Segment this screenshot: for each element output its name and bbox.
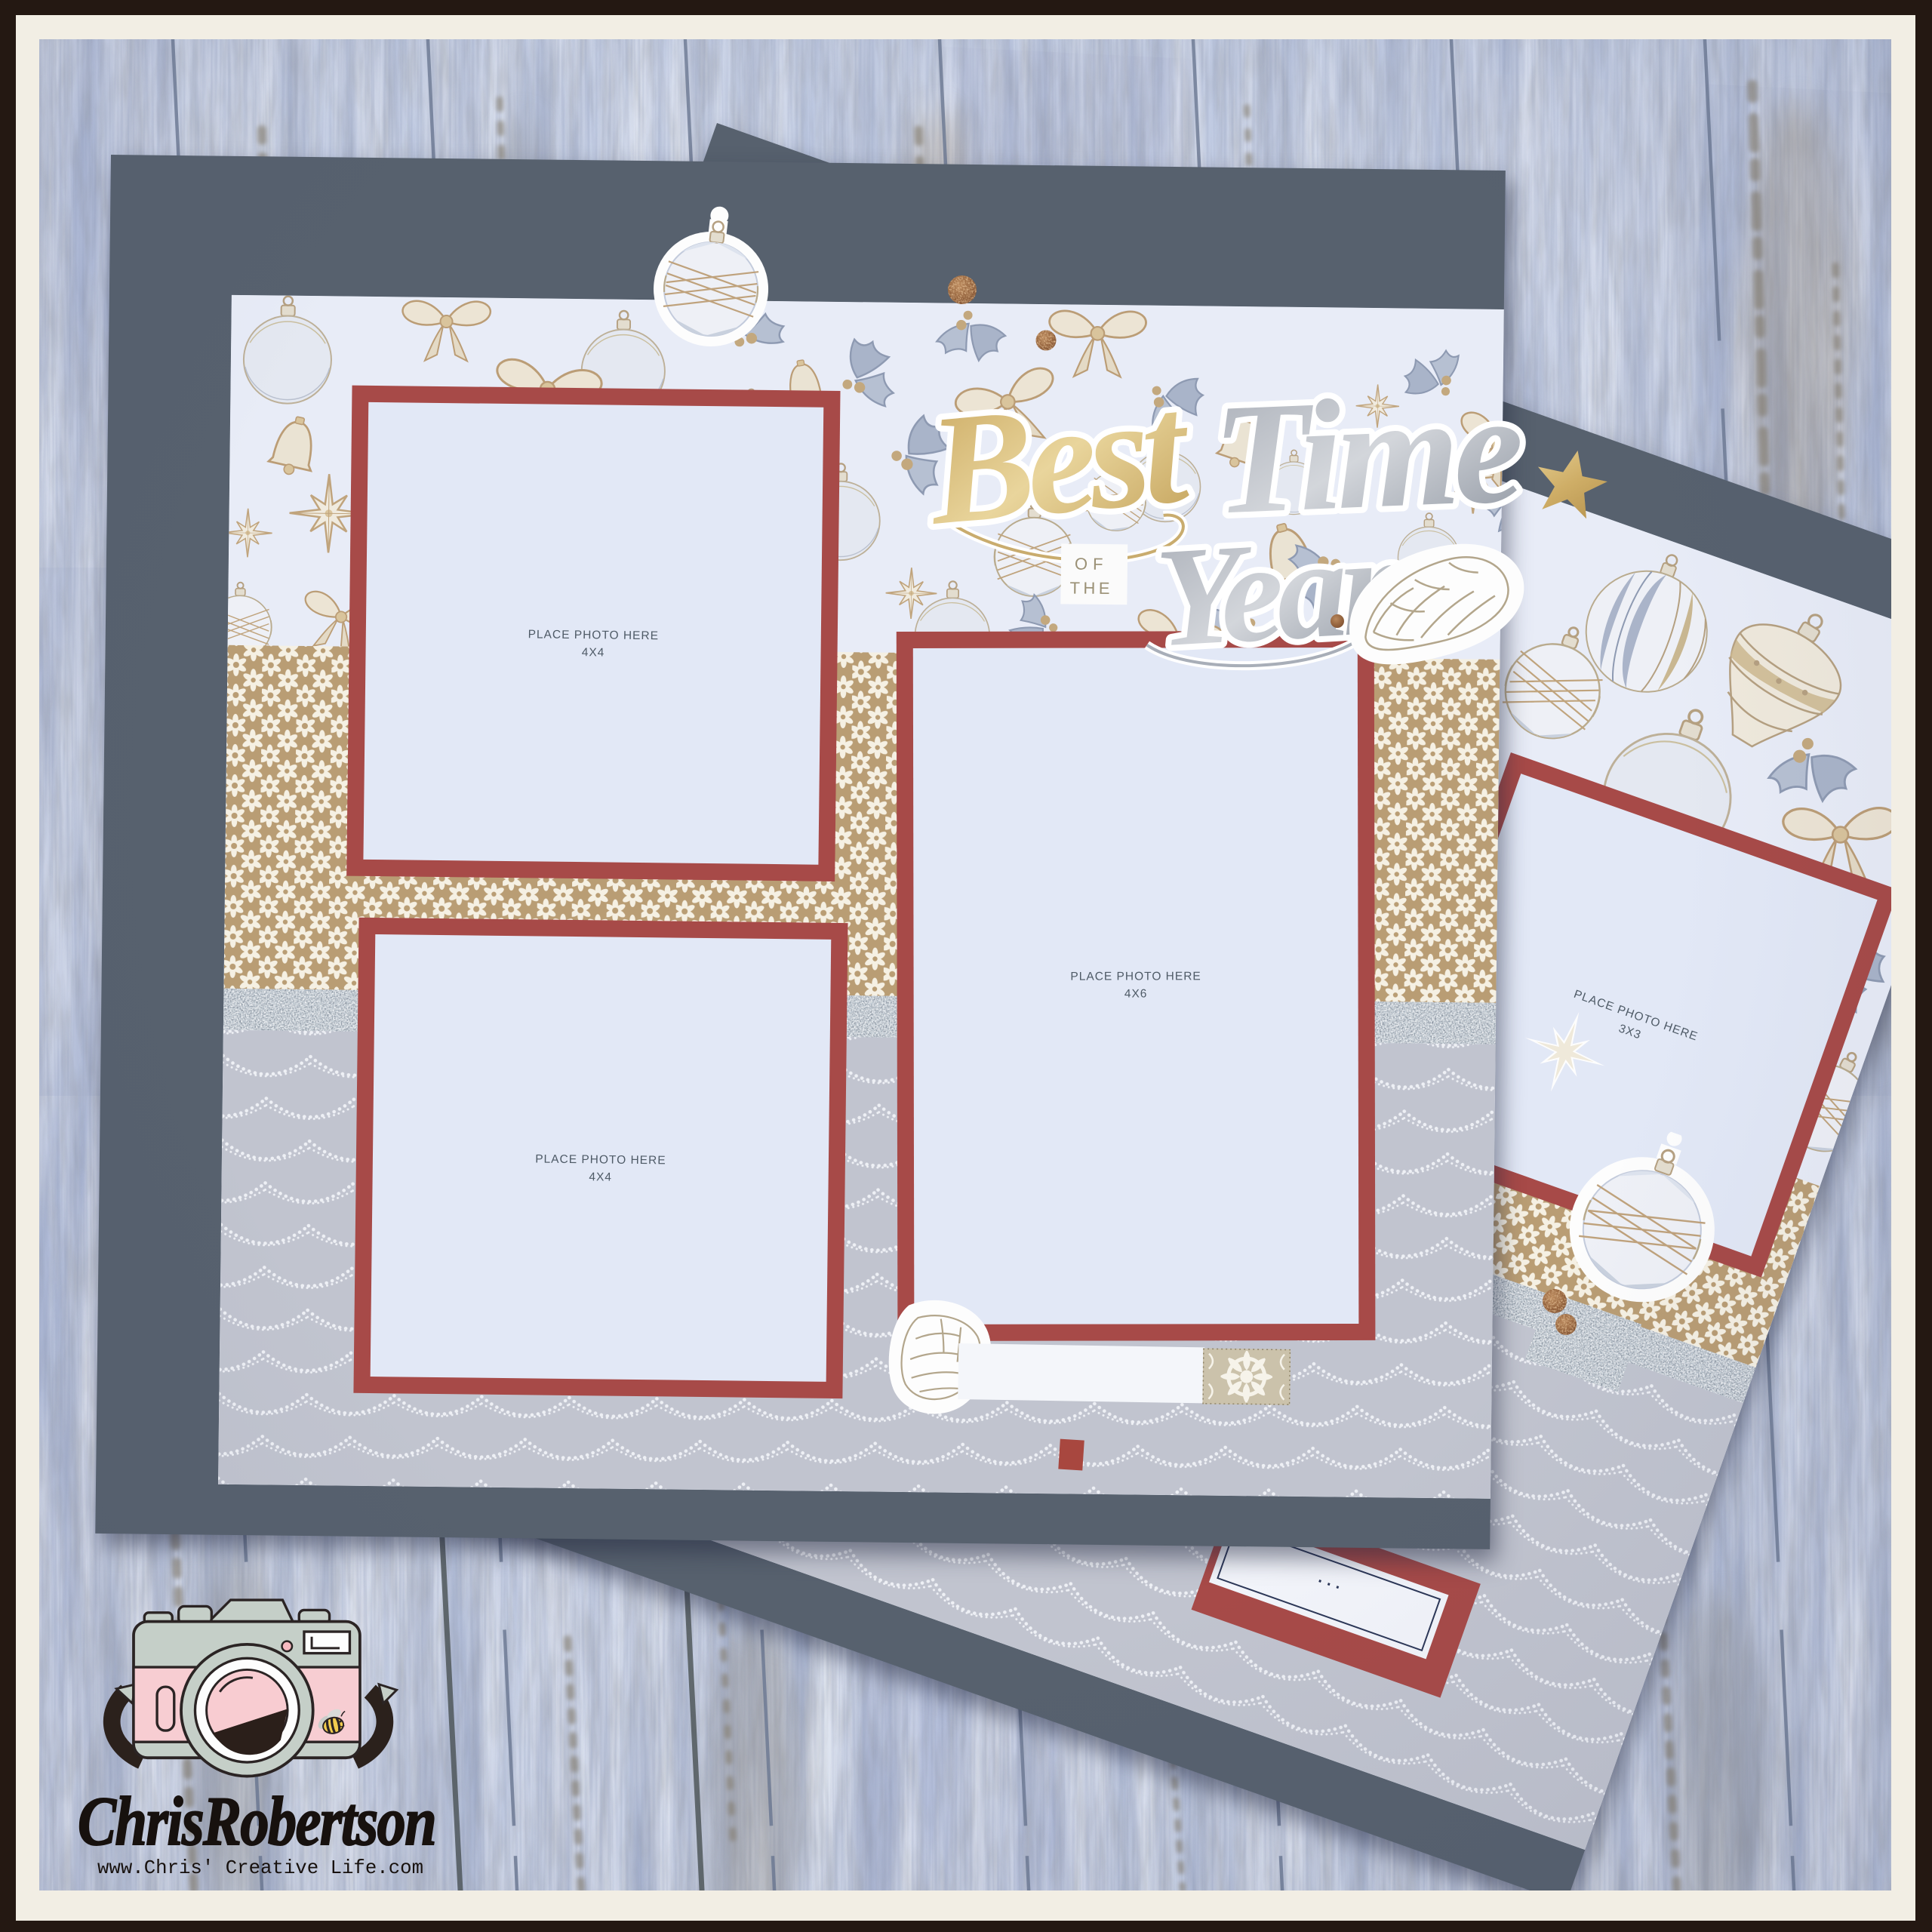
svg-text:OF: OF [1075, 555, 1109, 574]
svg-text:THE: THE [1069, 578, 1113, 598]
svg-text:www.Chris' Creative Life.com: www.Chris' Creative Life.com [97, 1857, 423, 1879]
svg-text:ChrisRobertson: ChrisRobertson [78, 1783, 435, 1860]
